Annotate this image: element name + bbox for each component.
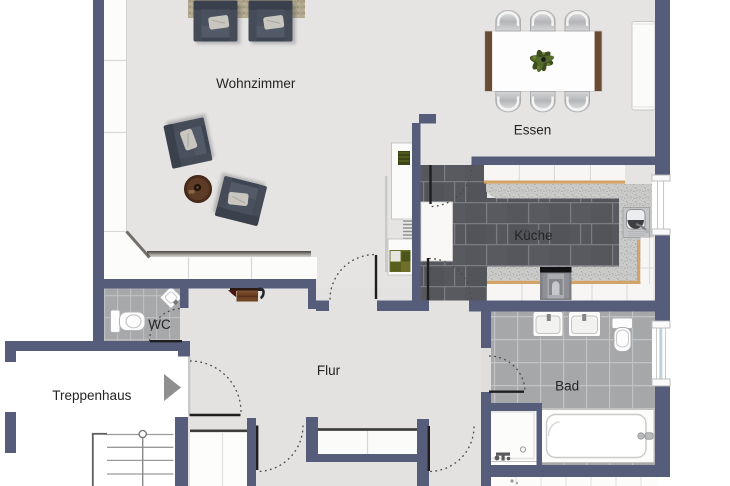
svg-text:Essen: Essen (514, 123, 552, 138)
svg-text:Treppenhaus: Treppenhaus (52, 388, 131, 403)
svg-text:Bad: Bad (555, 379, 579, 394)
svg-text:Küche: Küche (514, 228, 552, 243)
svg-text:Flur: Flur (317, 363, 341, 378)
svg-text:Wohnzimmer: Wohnzimmer (216, 76, 296, 91)
